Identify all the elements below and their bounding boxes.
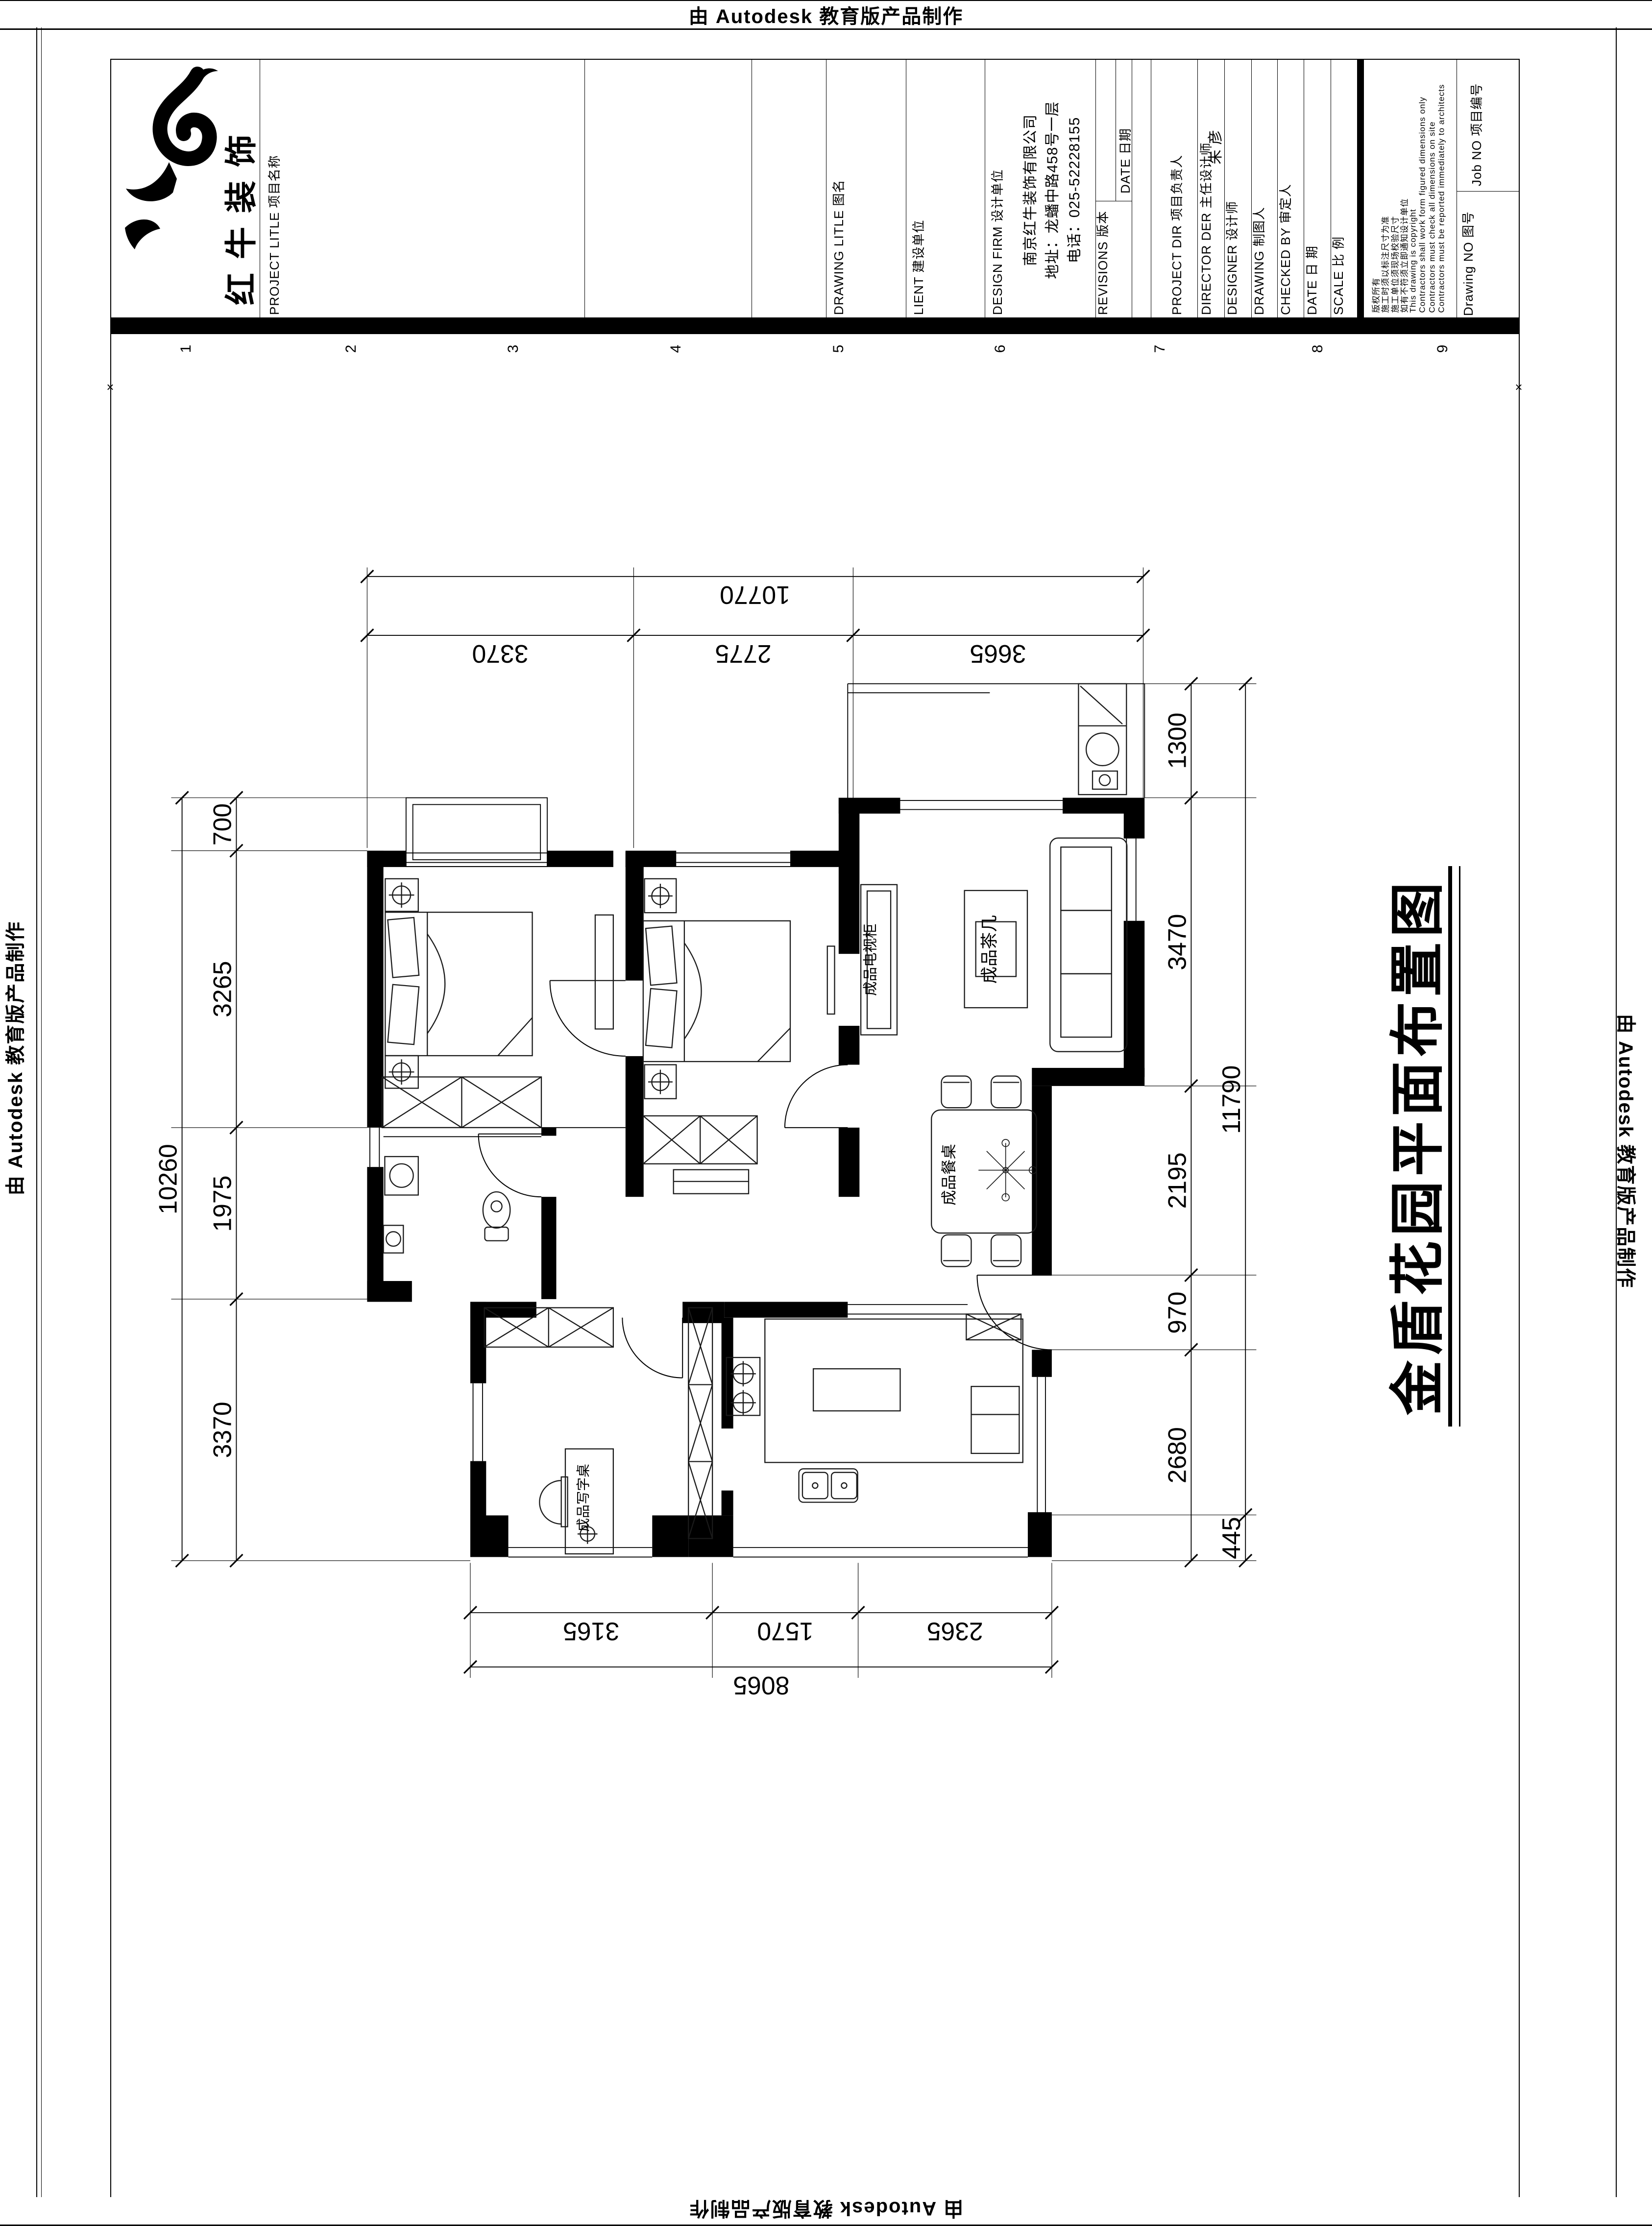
nightstand-1a xyxy=(385,879,418,912)
copyright-line: Contractors must be reported immediately… xyxy=(1437,66,1447,313)
grid-number: 2 xyxy=(343,340,360,357)
autodesk-banner-left: 由 Autodesk 教育版产品制作 xyxy=(0,847,27,1269)
fridge xyxy=(971,1386,1019,1453)
bed-2 xyxy=(643,921,790,1062)
design-firm-address: 地址：龙蟠中路458号一层 xyxy=(1044,65,1058,315)
project-title-label: PROJECT LITLE 项目名称 xyxy=(266,65,281,315)
copyright-line: Contractors shall work form figured dime… xyxy=(1418,66,1428,313)
autodesk-banner-bottom: 由 Autodesk 教育版产品制作 xyxy=(0,2197,1652,2226)
autodesk-banner-top: 由 Autodesk 教育版产品制作 xyxy=(0,0,1652,30)
grid-number: 5 xyxy=(830,340,847,357)
dim-right-1: 1300 xyxy=(1163,713,1191,769)
bedroom2-tv xyxy=(827,946,835,1014)
titleblock-heavy-divider xyxy=(1357,59,1364,317)
grid-number: 9 xyxy=(1434,340,1451,357)
bull-logo-icon xyxy=(115,66,220,277)
designer-label: DESIGNER 设计师 xyxy=(1224,65,1239,315)
revisions-label: REVISIONS 版本 xyxy=(1094,65,1109,315)
scale-label: SCALE 比 例 xyxy=(1330,65,1345,315)
grid-number: 3 xyxy=(505,340,522,357)
date-column-label: DATE 日期 xyxy=(1117,66,1132,194)
title-block-heavy-rule xyxy=(110,317,1520,334)
design-firm-name: 南京红牛装饰有限公司 xyxy=(1021,65,1036,315)
bull-body xyxy=(160,74,210,159)
dim-extension-lines xyxy=(171,567,1256,1678)
dim-top-total: 10770 xyxy=(720,581,790,609)
entry-door xyxy=(977,1275,1051,1350)
design-firm-label: DESIGN FIRM 设计单位 xyxy=(989,65,1004,315)
grid-number: 1 xyxy=(178,340,194,357)
hall-cabinet xyxy=(688,1307,712,1538)
titleblock-divider xyxy=(752,59,752,317)
dim-left-total: 10260 xyxy=(154,1144,182,1214)
bull-tail xyxy=(126,162,177,201)
titleblock-divider xyxy=(826,59,826,317)
study-chair xyxy=(539,1477,567,1527)
dim-right-3: 2195 xyxy=(1163,1152,1191,1209)
plant-decor xyxy=(978,1139,1036,1201)
dresser-2 xyxy=(674,1170,749,1194)
titleblock-divider xyxy=(906,59,906,317)
dim-bottom-total: 8065 xyxy=(733,1671,789,1700)
dim-bottom-3: 2365 xyxy=(927,1617,983,1645)
dim-right-total-2: 445 xyxy=(1217,1517,1245,1559)
bedroom2-door xyxy=(785,1065,848,1127)
dim-top-3: 3665 xyxy=(970,640,1026,668)
copyright-line: 如有不符须立即通知设计单位 xyxy=(1399,66,1409,313)
logo-company-name: 红牛装饰 xyxy=(219,86,258,340)
dim-bottom-1: 3165 xyxy=(563,1617,619,1645)
drawing-no-label: Drawing NO 图号 xyxy=(1460,194,1475,316)
nightstand-2b xyxy=(645,1065,677,1098)
autodesk-banner-right: 由 Autodesk 教育版产品制作 xyxy=(1614,941,1641,1362)
coffee-table-label: 成品茶几 xyxy=(980,915,999,984)
washbasin xyxy=(384,1225,404,1253)
kitchen-upper-cabinet xyxy=(966,1314,1021,1340)
titleblock-divider xyxy=(1457,191,1519,192)
bed-1 xyxy=(385,912,532,1056)
page-border-left-inner xyxy=(41,27,42,2197)
dim-left-1: 700 xyxy=(208,803,236,846)
nightstand-2a xyxy=(645,879,677,913)
wardrobe-1 xyxy=(382,1077,541,1127)
wardrobe-2 xyxy=(643,1116,757,1164)
frame-center-mark: × xyxy=(104,381,117,393)
cad-sheet: { "edge_banner": { "text": "由 Autodesk 教… xyxy=(0,0,1652,2225)
dining-table-label: 成品餐桌 xyxy=(940,1144,957,1206)
desk-label: 成品写字桌 xyxy=(576,1464,591,1531)
dim-lines xyxy=(182,577,1246,1667)
page-border-left-outer xyxy=(36,27,37,2197)
dim-top-1: 3370 xyxy=(472,640,528,668)
dim-left-4: 3370 xyxy=(208,1402,236,1458)
dim-left-3: 1975 xyxy=(208,1175,236,1232)
titleblock-divider xyxy=(584,59,585,317)
director-value: 朱 彦 xyxy=(1207,73,1221,220)
kitchen-sink xyxy=(799,1469,858,1502)
furniture-layer xyxy=(382,684,1127,1554)
sheet-title-underline-thin xyxy=(1459,866,1460,1427)
kitchen-counter xyxy=(765,1319,1022,1463)
titleblock-divider xyxy=(985,59,985,317)
sheet-title: 金盾花园平面布置图 xyxy=(1381,838,1445,1455)
dim-left-2: 3265 xyxy=(208,961,236,1017)
job-no-label: Job NO 项目编号 xyxy=(1468,64,1483,186)
dim-right-5: 2680 xyxy=(1163,1427,1191,1483)
date-label: DATE 日 期 xyxy=(1304,65,1318,315)
sofa xyxy=(1050,838,1127,1052)
porch-cabinet xyxy=(1078,684,1126,795)
grid-number: 7 xyxy=(1152,340,1168,357)
bull-flick xyxy=(125,219,160,249)
floor-plan: 3370 2775 3665 10770 3165 1570 2365 8065… xyxy=(132,527,1318,1733)
study-door xyxy=(622,1318,682,1378)
drawing-by-label: DRAWING 制图人 xyxy=(1251,65,1265,315)
windows-layer xyxy=(367,684,1144,1557)
copyright-line: This drawing is copyright xyxy=(1409,66,1418,313)
checked-by-label: CHECKED BY 审定人 xyxy=(1277,65,1292,315)
walls-layer xyxy=(367,798,1144,1557)
titleblock-divider xyxy=(1151,59,1151,317)
project-dir-label: PROJECT DIR 项目负责人 xyxy=(1168,65,1183,315)
page-border-right xyxy=(1616,27,1617,2197)
frame-center-mark: × xyxy=(1512,381,1525,393)
sheet-frame-top xyxy=(110,59,1520,60)
dim-bottom-2: 1570 xyxy=(757,1617,813,1645)
sheet-title-underline-thick xyxy=(1448,866,1452,1427)
dim-right-2: 3470 xyxy=(1163,914,1191,970)
drawing-title-label: DRAWING LITLE 图名 xyxy=(830,65,845,315)
grid-number: 6 xyxy=(992,340,1009,357)
design-firm-phone: 电话：025-52228155 xyxy=(1066,65,1080,315)
dim-ticks xyxy=(176,570,1252,1673)
grid-number: 8 xyxy=(1310,340,1326,357)
grid-number: 4 xyxy=(668,340,684,357)
bathroom-door xyxy=(479,1134,541,1197)
titleblock-divider xyxy=(1457,59,1457,317)
client-label: LIENT 建设单位 xyxy=(910,65,925,315)
dim-right-total-1: 11790 xyxy=(1217,1065,1245,1134)
dim-right-4: 970 xyxy=(1163,1291,1191,1333)
washing-machine xyxy=(385,1157,418,1195)
toilet xyxy=(483,1192,510,1241)
bedroom1-cabinet xyxy=(595,915,613,1029)
dim-top-2: 2775 xyxy=(715,640,771,668)
furniture-labels: 成品电视柜 成品茶几 成品餐桌 成品写字桌 xyxy=(576,915,999,1532)
bedroom1-door xyxy=(550,981,626,1056)
tv-cabinet-label: 成品电视柜 xyxy=(863,923,879,996)
copyright-line: Contractors must check all dimensions on… xyxy=(1428,66,1437,313)
nightstand-1b xyxy=(385,1056,418,1089)
